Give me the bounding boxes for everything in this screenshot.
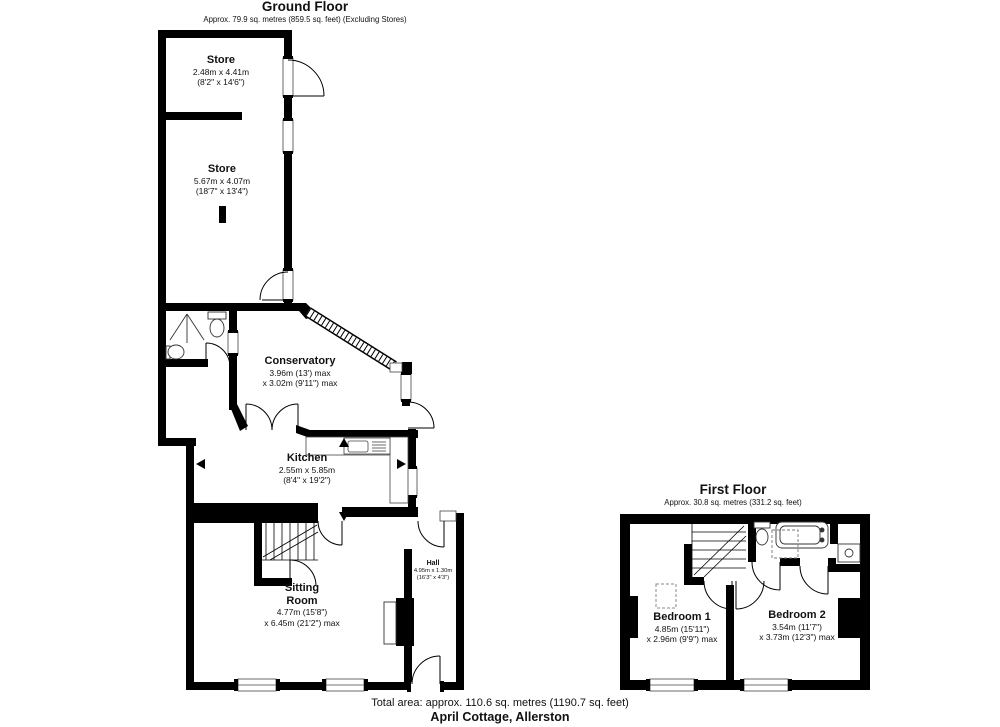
interior-window: [228, 330, 238, 356]
room-name: Bedroom 2: [759, 609, 835, 622]
room-dim-metric: 2.55m x 5.85m: [279, 465, 335, 476]
loft-hatch-outline: [656, 584, 676, 608]
door-arc: [800, 566, 828, 594]
window: [407, 466, 417, 498]
room-label-bedroom2: Bedroom 2 3.54m (11'7") x 3.73m (12'3") …: [759, 609, 835, 643]
first-floor-stairs: [692, 524, 746, 577]
bath-icon: [776, 522, 828, 548]
door-arc: [736, 581, 764, 609]
room-name: Conservatory: [263, 355, 338, 368]
room-dim-metric: 4.85m (15'11"): [647, 624, 718, 635]
window: [390, 363, 402, 372]
property-name: April Cottage, Allerston: [371, 710, 629, 726]
ground-floor-title: Ground Floor: [203, 0, 406, 15]
door-arc: [318, 521, 342, 545]
room-dim-imperial: x 3.02m (9'11") max: [263, 378, 338, 389]
bathroom-fixtures: [754, 522, 860, 562]
room-name: Sitting Room: [273, 582, 331, 607]
first-floor-header: First Floor Approx. 30.8 sq. metres (331…: [664, 483, 801, 508]
first-floor-area-note: Approx. 30.8 sq. metres (331.2 sq. feet): [664, 498, 801, 508]
window: [283, 268, 293, 302]
room-dim-imperial: x 6.45m (21'2") max: [264, 618, 340, 629]
room-label-hall: Hall 4.95m x 1.30m (16'3" x 4'3"): [414, 560, 452, 582]
sink-icon: [166, 345, 184, 359]
window: [283, 118, 293, 154]
room-dim-imperial: x 2.96m (9'9") max: [647, 634, 718, 645]
first-floor-walls: [620, 514, 870, 690]
room-dim-imperial: (16'3" x 4'3"): [414, 575, 452, 582]
first-floor-plan: [620, 514, 870, 691]
window: [646, 679, 698, 691]
window: [322, 679, 368, 691]
first-floor-title: First Floor: [664, 483, 801, 498]
floorplan-drawing: [0, 0, 1000, 727]
window: [740, 679, 792, 691]
room-label-store-top: Store 2.48m x 4.41m (8'2" x 14'6"): [193, 54, 249, 88]
plan-footer: Total area: approx. 110.6 sq. metres (11…: [371, 696, 629, 726]
staircase: [262, 523, 318, 560]
door-arc: [412, 656, 440, 684]
room-dim-metric: 4.95m x 1.30m: [414, 568, 452, 575]
room-dim-metric: 3.96m (13') max: [263, 368, 338, 379]
basin-icon: [838, 544, 860, 562]
fireplace: [384, 602, 396, 644]
shower-icon: [170, 314, 204, 343]
room-name: Kitchen: [279, 452, 335, 465]
arrow-left-icon: [196, 459, 205, 469]
room-dim-imperial: (8'4" x 19'2"): [279, 475, 335, 486]
room-label-kitchen: Kitchen 2.55m x 5.85m (8'4" x 19'2"): [279, 452, 335, 486]
toilet-icon: [208, 312, 226, 337]
room-dim-metric: 3.54m (11'7"): [759, 622, 835, 633]
door-arc: [418, 521, 444, 547]
kitchen-sink-icon: [344, 438, 390, 454]
ground-floor-area-note: Approx. 79.9 sq. metres (859.5 sq. feet)…: [203, 15, 406, 25]
floorplan-page: Ground Floor Approx. 79.9 sq. metres (85…: [0, 0, 1000, 727]
room-dim-imperial: (18'7" x 13'4"): [194, 186, 250, 197]
room-dim-metric: 2.48m x 4.41m: [193, 67, 249, 78]
total-area-text: Total area: approx. 110.6 sq. metres (11…: [371, 696, 629, 710]
room-label-store-main: Store 5.67m x 4.07m (18'7" x 13'4"): [194, 163, 250, 197]
room-label-bedroom1: Bedroom 1 4.85m (15'11") x 2.96m (9'9") …: [647, 611, 718, 645]
wc-fixtures: [166, 312, 226, 359]
room-name: Store: [193, 54, 249, 67]
room-name: Store: [194, 163, 250, 176]
room-label-sitting-room: Sitting Room 4.77m (15'8") x 6.45m (21'2…: [264, 582, 340, 629]
door-arc: [752, 562, 780, 590]
door-arc: [206, 343, 230, 367]
window: [401, 372, 411, 402]
room-dim-imperial: x 3.73m (12'3") max: [759, 632, 835, 643]
room-dim-imperial: (8'2" x 14'6"): [193, 77, 249, 88]
toilet-icon: [754, 522, 770, 545]
room-name: Bedroom 1: [647, 611, 718, 624]
double-door-arc: [246, 404, 298, 430]
ground-floor-header: Ground Floor Approx. 79.9 sq. metres (85…: [203, 0, 406, 25]
room-dim-metric: 5.67m x 4.07m: [194, 176, 250, 187]
window: [440, 511, 456, 521]
window: [283, 56, 293, 98]
window: [234, 679, 280, 691]
room-label-conservatory: Conservatory 3.96m (13') max x 3.02m (9'…: [263, 355, 338, 389]
front-door-opening: [407, 681, 444, 692]
room-name: Hall: [414, 560, 452, 568]
room-dim-metric: 4.77m (15'8"): [264, 607, 340, 618]
door-arc: [408, 402, 434, 428]
first-floor-doors: [704, 562, 828, 609]
